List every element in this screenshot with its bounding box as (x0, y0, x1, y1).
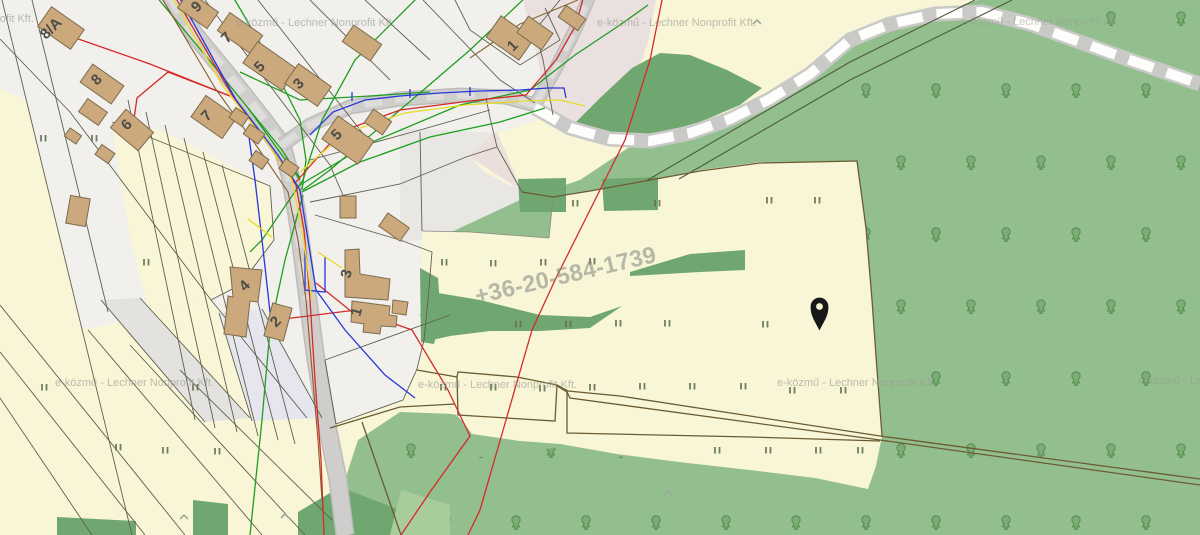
svg-text:e-közmű - Lechner Nonprofit Kf: e-közmű - Lechner Nonprofit Kft. (0, 13, 34, 25)
svg-text:e-közmű - Lechner Nonprofit Kf: e-közmű - Lechner Nonprofit Kft. (55, 377, 214, 389)
svg-text:e-közmű - Lechner Nonprofit Kf: e-közmű - Lechner Nonprofit Kft. (418, 379, 577, 391)
svg-text:e-közmű - Lechner Nonprofit Kf: e-közmű - Lechner Nonprofit Kft. (236, 17, 395, 29)
svg-text:e-közmű - Lechner Nonprofit Kf: e-közmű - Lechner Nonprofit Kft. (961, 16, 1120, 28)
svg-text:e-közmű - Lechner Nonprofit Kf: e-közmű - Lechner Nonprofit Kft. (777, 377, 936, 389)
svg-text:e-közmű - Lechner Nonprofit Kf: e-közmű - Lechner Nonprofit Kft. (1138, 375, 1200, 387)
svg-text:e-közmű - Lechner Nonprofit Kf: e-közmű - Lechner Nonprofit Kft. (597, 17, 756, 29)
